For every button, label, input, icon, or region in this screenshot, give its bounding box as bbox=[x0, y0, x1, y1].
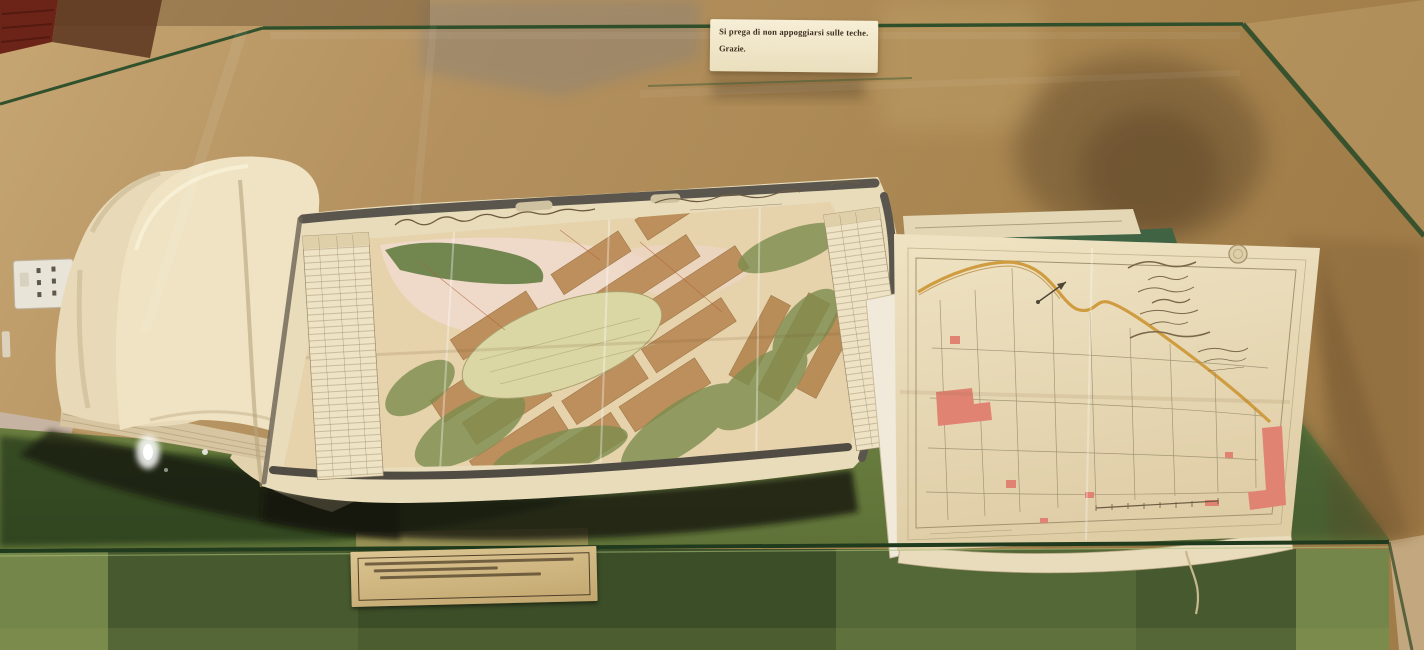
left-foldout-map bbox=[262, 171, 912, 540]
sign-text-line1: Si prega di non appoggiarsi sulle teche. bbox=[719, 26, 869, 38]
caption-border bbox=[358, 552, 591, 601]
caption-text-line bbox=[365, 558, 574, 566]
round-stamp bbox=[1229, 245, 1247, 263]
scene-graphics bbox=[0, 0, 1424, 650]
caption-text-line bbox=[380, 572, 541, 579]
sign-text-line2: Grazie. bbox=[719, 43, 869, 55]
right-map-group bbox=[866, 209, 1320, 614]
museum-display-case-photo: Si prega di non appoggiarsi sulle teche.… bbox=[0, 0, 1424, 650]
outlet-switch bbox=[20, 272, 29, 286]
do-not-lean-sign: Si prega di non appoggiarsi sulle teche.… bbox=[710, 19, 879, 73]
caption-text-line bbox=[374, 566, 498, 572]
exhibit-caption-label bbox=[350, 546, 597, 607]
